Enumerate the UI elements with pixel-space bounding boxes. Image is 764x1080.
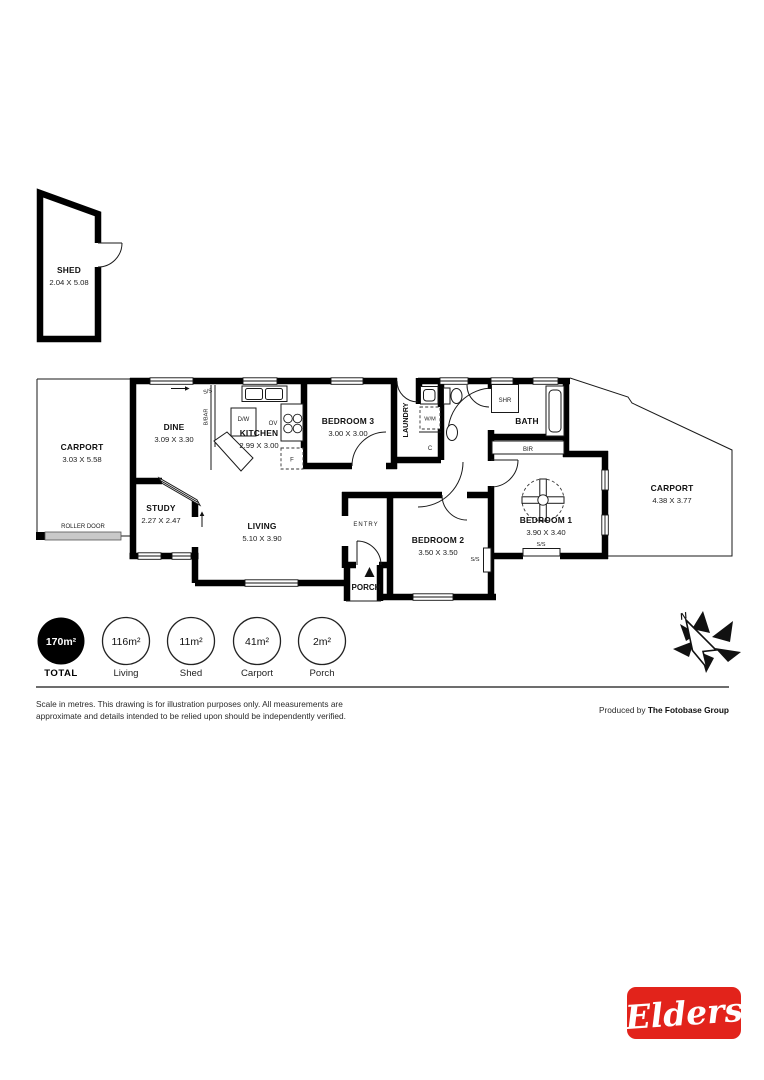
bedroom3-dims: 3.00 X 3.00 — [328, 429, 367, 438]
study-dims: 2.27 X 2.47 — [141, 516, 180, 525]
toilet-bowl — [451, 389, 462, 404]
legend-label-porch: Porch — [309, 668, 334, 679]
legend-value-shed: 11m² — [179, 636, 203, 648]
elders-logo-text: Elders — [623, 990, 744, 1037]
legend-value-total: 170m² — [46, 636, 77, 648]
porch: PORCH — [352, 567, 381, 592]
legend-item-carport: 41m² Carport — [234, 618, 281, 680]
carport-left-label: CARPORT — [61, 442, 104, 452]
legend-label-living: Living — [113, 668, 138, 679]
porch-triangle — [365, 567, 375, 577]
disclaimer-line2: approximate and details intended to be r… — [36, 711, 346, 721]
legend-item-total: 170m² TOTAL — [38, 618, 85, 680]
room-label-bedroom2: BEDROOM 2 3.50 X 3.50 — [412, 535, 465, 557]
room-label-study: STUDY 2.27 X 2.47 — [141, 503, 180, 525]
fan-hub — [538, 495, 548, 505]
bedroom2-dims: 3.50 X 3.50 — [418, 548, 457, 557]
porch-label: PORCH — [352, 583, 381, 592]
walls-outer — [130, 378, 609, 601]
bed1-robe — [523, 549, 560, 557]
shed-label: SHED — [57, 265, 81, 275]
legend-label-total: TOTAL — [44, 668, 78, 679]
dw-label: D/W — [238, 417, 250, 423]
house-walls — [130, 378, 609, 601]
footer: Scale in metres. This drawing is for ill… — [36, 687, 729, 721]
bir-label: BIR — [523, 447, 534, 453]
carport-right-dims: 4.38 X 3.77 — [652, 496, 691, 505]
carport-right: CARPORT 4.38 X 3.77 — [570, 378, 732, 556]
roller-door-stub — [36, 532, 45, 540]
study-corner-window — [159, 478, 200, 506]
bbar-label: B/BAR — [204, 409, 210, 426]
room-label-dine: DINE 3.09 X 3.30 — [154, 422, 193, 444]
shr-label: SHR — [499, 398, 512, 404]
floorplan-page: SHED 2.04 X 5.08 ROLLER DOOR CARPORT 3.0… — [0, 0, 764, 1080]
bedroom1-dims: 3.90 X 3.40 — [526, 528, 565, 537]
legend-label-shed: Shed — [180, 668, 202, 679]
room-label-living: LIVING 5.10 X 3.90 — [242, 521, 281, 543]
bedroom1-label: BEDROOM 1 — [520, 515, 573, 525]
laundry-wc-fixtures: W/M C LAUNDRY — [401, 387, 462, 453]
compass: N — [673, 610, 741, 673]
living-dims: 5.10 X 3.90 — [242, 534, 281, 543]
produced-prefix: Produced by — [599, 705, 648, 715]
kitchen-label: KITCHEN — [240, 428, 279, 438]
dine-dims: 3.09 X 3.30 — [154, 435, 193, 444]
legend: 170m² TOTAL 116m² Living 11m² Shed 41m² … — [38, 618, 346, 680]
produced-brand: The Fotobase Group — [648, 705, 729, 715]
legend-item-porch: 2m² Porch — [299, 618, 346, 680]
room-label-bedroom3: BEDROOM 3 3.00 X 3.00 — [322, 416, 375, 438]
shed-door-arc — [98, 243, 122, 267]
laundry-label: LAUNDRY — [401, 402, 410, 437]
produced-by: Produced by The Fotobase Group — [599, 705, 729, 715]
toilet-cistern — [444, 388, 451, 404]
carport-right-label: CARPORT — [651, 483, 694, 493]
roller-door — [45, 532, 121, 540]
carport-left-dims: 3.03 X 5.58 — [62, 455, 101, 464]
legend-item-shed: 11m² Shed — [168, 618, 215, 680]
carport-right-outline — [570, 378, 732, 556]
bedroom3-label: BEDROOM 3 — [322, 416, 375, 426]
fridge-label: F — [290, 458, 294, 464]
room-label-bedroom1: BEDROOM 1 3.90 X 3.40 — [520, 515, 573, 537]
bathtub-inner — [549, 390, 561, 432]
wm-label: W/M — [424, 417, 436, 423]
ss-bed1-label: S/S — [536, 542, 545, 548]
roller-door-label: ROLLER DOOR — [61, 524, 105, 530]
sink-bowl-right — [266, 389, 283, 400]
ov-label: OV — [269, 421, 278, 427]
breakfast-bar-lines — [211, 385, 215, 470]
dine-label: DINE — [164, 422, 185, 432]
bedroom2-label: BEDROOM 2 — [412, 535, 465, 545]
living-label: LIVING — [247, 521, 276, 531]
ss-kitchen-label: S/S — [203, 388, 213, 396]
carport-left: ROLLER DOOR CARPORT 3.03 X 5.58 — [36, 379, 133, 540]
doors — [171, 381, 518, 565]
legend-value-carport: 41m² — [245, 636, 269, 648]
study-label: STUDY — [146, 503, 176, 513]
bath-fixtures: SHR BATH BIR — [492, 385, 565, 455]
legend-value-living: 116m² — [112, 636, 141, 648]
legend-label-carport: Carport — [241, 668, 273, 679]
legend-value-porch: 2m² — [313, 636, 332, 648]
disclaimer-line1: Scale in metres. This drawing is for ill… — [36, 699, 343, 709]
legend-item-living: 116m² Living — [103, 618, 150, 680]
bed2-robe — [484, 548, 492, 572]
entry-label: ENTRY — [353, 522, 378, 528]
shed-dims: 2.04 X 5.08 — [49, 278, 88, 287]
cupboard-label: C — [428, 446, 433, 452]
bath-label: BATH — [515, 416, 538, 426]
ss-bed2-label: S/S — [470, 557, 479, 563]
laundry-trough-bowl — [424, 390, 436, 402]
compass-north-label: N — [679, 610, 690, 623]
wc-basin — [447, 425, 458, 441]
sink-bowl-left — [246, 389, 263, 400]
study-door-arrow — [200, 511, 205, 527]
room-label-kitchen: KITCHEN 2.99 X 3.00 — [239, 428, 278, 450]
floorplan-svg: SHED 2.04 X 5.08 ROLLER DOOR CARPORT 3.0… — [0, 0, 764, 1080]
elders-logo: Elders — [623, 987, 744, 1039]
kitchen-dims: 2.99 X 3.00 — [239, 441, 278, 450]
shed: SHED 2.04 X 5.08 — [40, 193, 122, 339]
dine-slider-arrow — [171, 386, 190, 391]
